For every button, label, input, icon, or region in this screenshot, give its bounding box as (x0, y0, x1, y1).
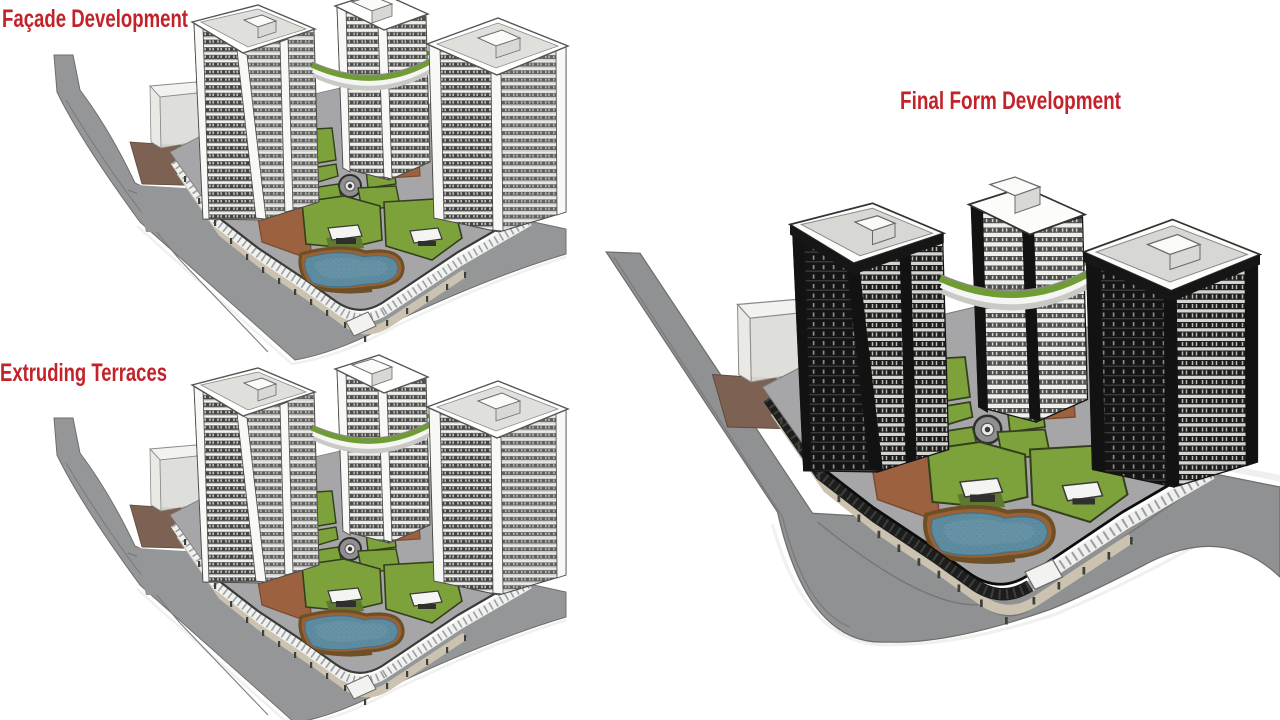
svg-text:Final Form Development: Final Form Development (900, 87, 1122, 115)
svg-text:Extruding Terraces: Extruding Terraces (0, 359, 167, 387)
svg-text:Façade Development: Façade Development (2, 5, 188, 33)
